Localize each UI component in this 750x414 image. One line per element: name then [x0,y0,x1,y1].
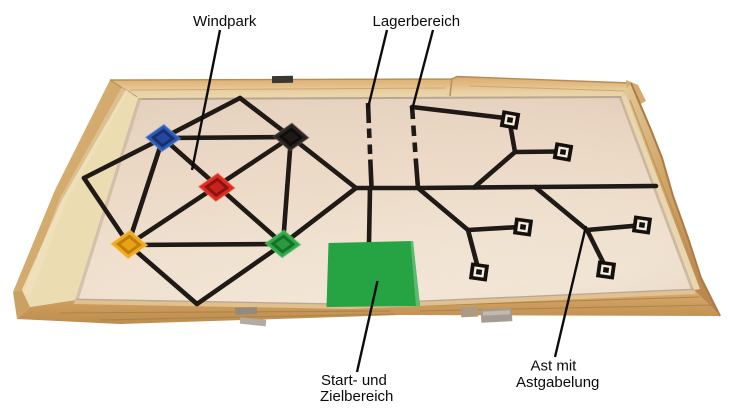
svg-text:Zielbereich: Zielbereich [320,388,393,405]
svg-text:Start- und: Start- und [321,372,387,389]
svg-text:Windpark: Windpark [193,13,257,30]
svg-text:Ast mit: Ast mit [531,358,578,375]
svg-text:Lagerbereich: Lagerbereich [373,13,461,30]
svg-text:Astgabelung: Astgabelung [516,374,599,391]
